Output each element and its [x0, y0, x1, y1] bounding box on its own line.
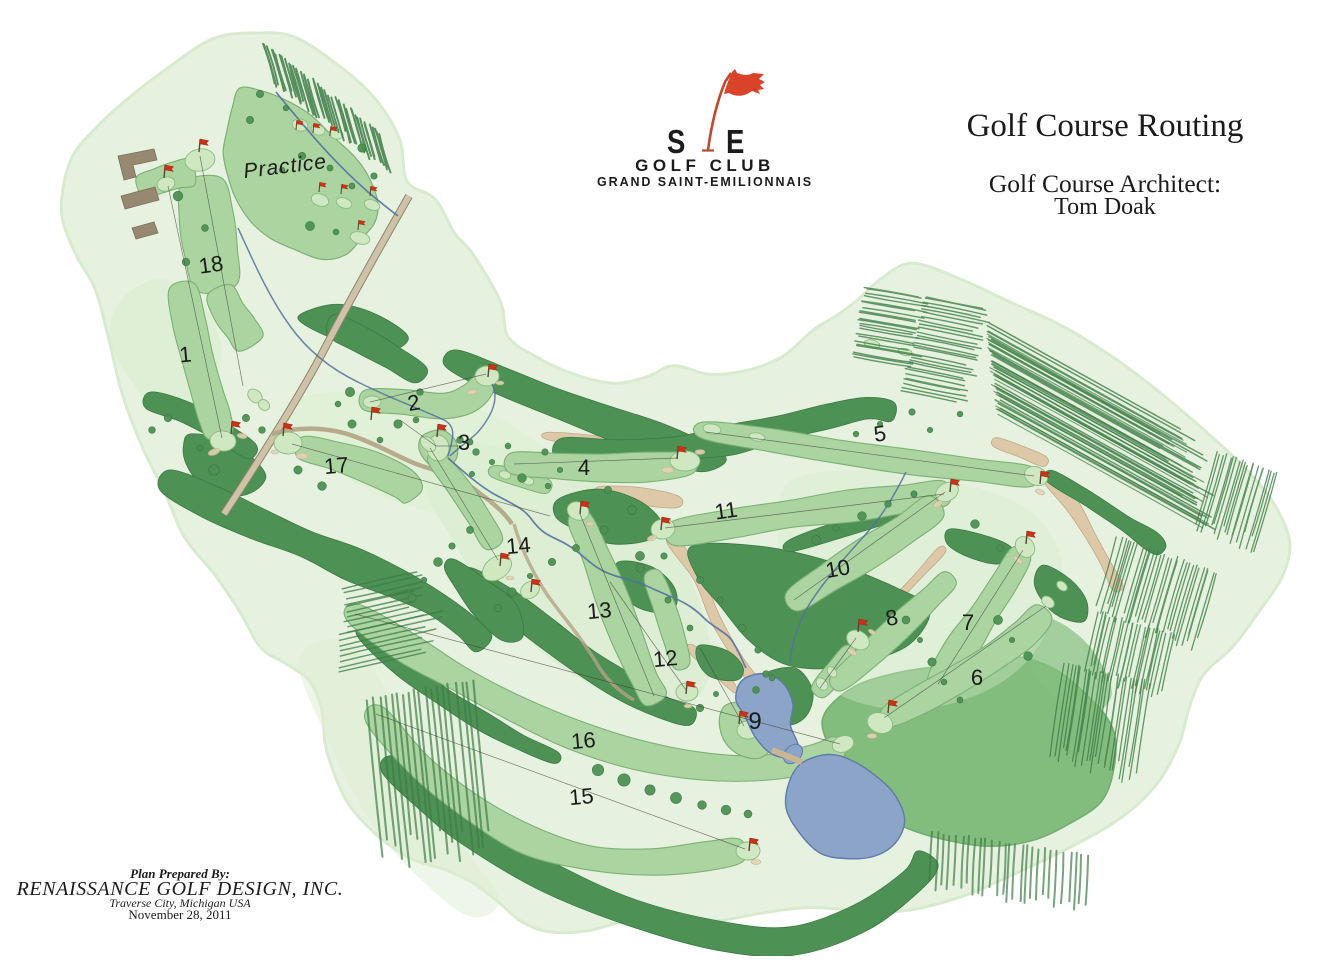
svg-text:17: 17 — [323, 452, 350, 479]
svg-text:10: 10 — [823, 554, 851, 583]
svg-text:12: 12 — [652, 645, 679, 672]
svg-text:14: 14 — [505, 532, 532, 559]
svg-text:18: 18 — [197, 250, 225, 278]
svg-text:6: 6 — [971, 665, 983, 690]
svg-text:GOLF CLUB: GOLF CLUB — [635, 156, 775, 175]
svg-text:1: 1 — [178, 342, 192, 368]
svg-text:13: 13 — [586, 597, 613, 624]
svg-text:Golf Course Routing: Golf Course Routing — [967, 108, 1244, 144]
svg-text:7: 7 — [962, 610, 974, 635]
svg-text:11: 11 — [713, 497, 739, 525]
svg-text:9: 9 — [748, 708, 761, 735]
svg-text:4: 4 — [578, 455, 590, 480]
svg-text:16: 16 — [570, 727, 597, 754]
svg-text:GRAND SAINT-EMILIONNAIS: GRAND SAINT-EMILIONNAIS — [597, 175, 813, 189]
svg-text:November 28, 2011: November 28, 2011 — [128, 907, 231, 922]
svg-text:15: 15 — [568, 783, 595, 810]
svg-text:Tom Doak: Tom Doak — [1054, 194, 1156, 220]
svg-text:3: 3 — [458, 430, 470, 455]
